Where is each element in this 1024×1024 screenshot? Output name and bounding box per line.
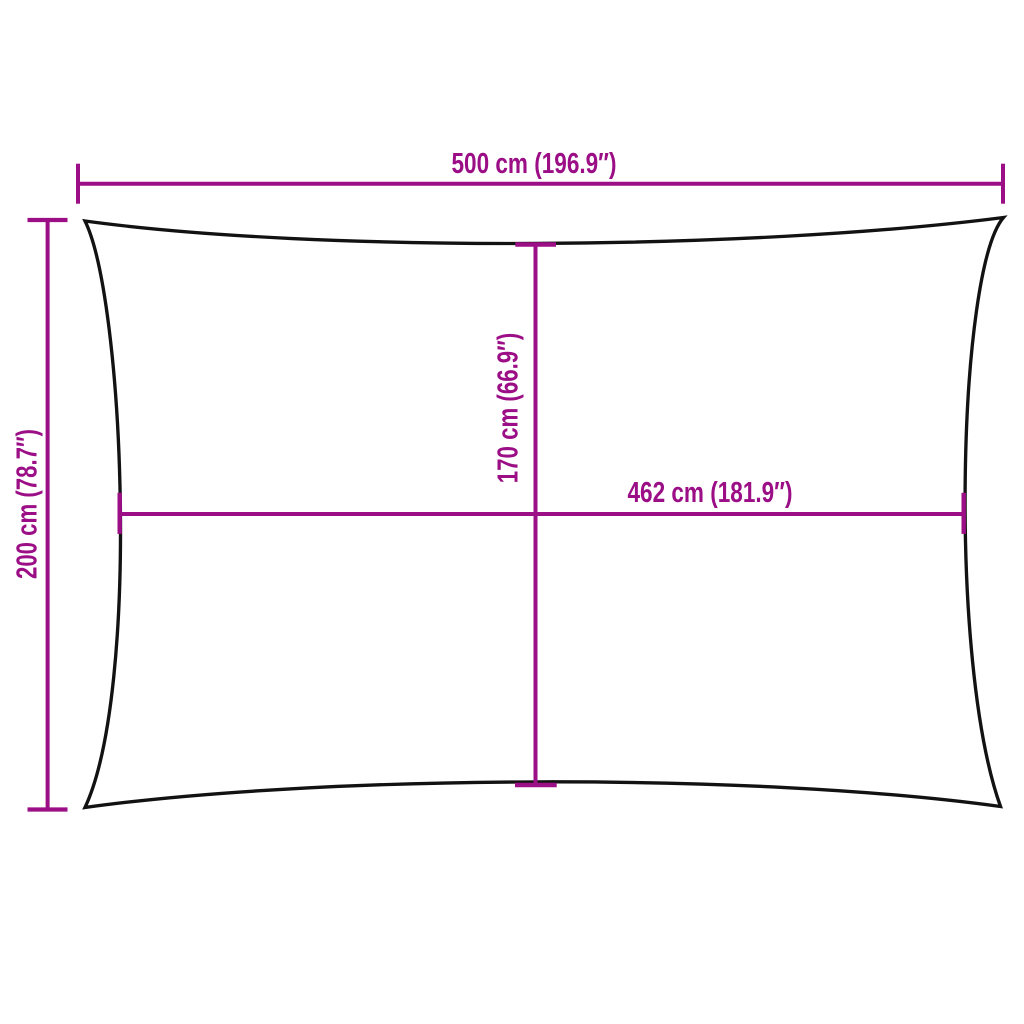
svg-text:500 cm (196.9″): 500 cm (196.9″) [452,148,617,180]
svg-text:462 cm (181.9″): 462 cm (181.9″) [628,477,793,509]
svg-text:200 cm (78.7″): 200 cm (78.7″) [12,429,44,579]
svg-text:170 cm (66.9″): 170 cm (66.9″) [493,333,525,484]
